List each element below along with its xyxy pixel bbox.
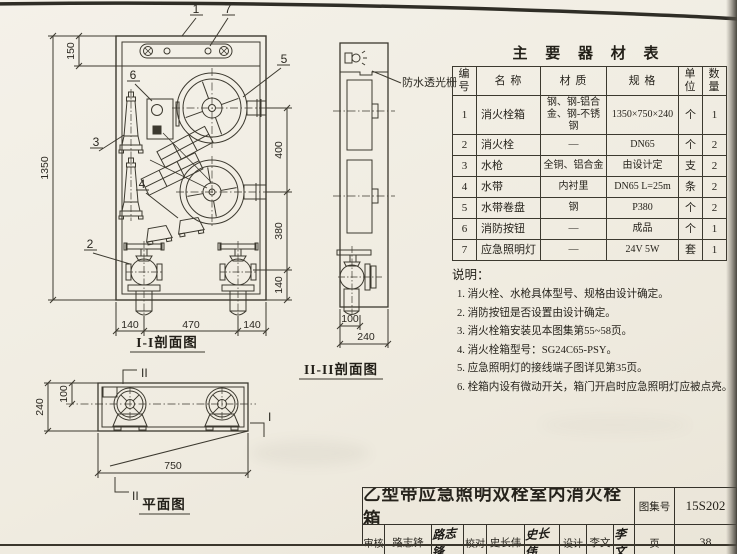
col-header-no: 编号: [453, 67, 477, 96]
cell-spec: 成品: [607, 219, 679, 240]
reel-side-bottom: [333, 160, 395, 233]
cell-no: 7: [453, 240, 477, 261]
dim-100-plan: 100: [58, 385, 70, 403]
cell-spec: DN65 L=25m: [607, 177, 679, 198]
title-block: 乙型带应急照明双栓室内消火栓箱 图集号 15S202 审核 路志锋 路志锋 校对…: [362, 487, 737, 545]
cell-unit: 支: [679, 156, 703, 177]
col-header-unit: 单位: [679, 67, 703, 96]
callout-4: 4: [139, 177, 146, 191]
cell-unit: 个: [679, 96, 703, 135]
dim-150: 150: [65, 42, 77, 60]
cell-qty: 1: [703, 240, 727, 261]
callout-3: 3: [93, 135, 100, 149]
cell-unit: 个: [679, 198, 703, 219]
cell-qty: 2: [703, 156, 727, 177]
emergency-lamp-icon: [345, 51, 367, 65]
dim-240-plan: 240: [34, 398, 46, 416]
cell-qty: 1: [703, 96, 727, 135]
table-row: 5 水带卷盘 钢 P380 个 2: [453, 198, 727, 219]
table-row: 1 消火栓箱 钢、钢-铝合金、钢-不锈钢 1350×750×240 个 1: [453, 96, 727, 135]
cell-name: 水带卷盘: [477, 198, 541, 219]
cell-no: 1: [453, 96, 477, 135]
cell-no: 2: [453, 135, 477, 156]
callout-7: 7: [225, 2, 232, 16]
cell-qty: 2: [703, 198, 727, 219]
waterproof-grille-note: 防水透光栅: [402, 75, 457, 89]
bleedthrough-smudge: [250, 440, 370, 466]
dim-1350: 1350: [39, 156, 51, 180]
designer-name: 李文: [586, 525, 613, 554]
equipment-table-title: 主 要 器 材 表: [452, 42, 726, 63]
dim-380: 380: [273, 222, 285, 240]
cell-unit: 个: [679, 219, 703, 240]
callout-2: 2: [87, 237, 94, 251]
callout-5: 5: [281, 52, 288, 66]
cell-material: 全铜、铝合金: [541, 156, 607, 177]
cell-name: 消防按钮: [477, 219, 541, 240]
drawing-title: 乙型带应急照明双栓室内消火栓箱: [363, 488, 634, 524]
cell-unit: 个: [679, 135, 703, 156]
cell-no: 5: [453, 198, 477, 219]
water-gun-top: [119, 89, 143, 155]
note-item: 1. 消火栓、水枪具体型号、规格由设计确定。: [452, 286, 737, 305]
cell-spec: 由设计定: [607, 156, 679, 177]
cell-spec: P380: [607, 198, 679, 219]
hydrant-valve-right: [218, 241, 258, 316]
cell-unit: 条: [679, 177, 703, 198]
folded-hoses: [141, 126, 213, 245]
hydrant-valve-left: [124, 241, 164, 316]
table-row: 6 消防按钮 — 成品 个 1: [453, 219, 727, 240]
table-row: 4 水带 内衬里 DN65 L=25m 条 2: [453, 177, 727, 198]
col-header-material: 材 质: [541, 67, 607, 96]
cell-material: 钢: [541, 198, 607, 219]
col-header-spec: 规 格: [607, 67, 679, 96]
note-item: 3. 消火栓箱安装见本图集第55~58页。: [452, 323, 737, 342]
plan-view-dimensions: [44, 380, 251, 478]
notes-title: 说明：: [452, 264, 737, 283]
equipment-table-header-row: 编号 名 称 材 质 规 格 单位 数量: [453, 67, 727, 96]
dim-140-br: 140: [243, 319, 261, 331]
plan-reel-right: [204, 386, 241, 430]
notes-section: 说明： 1. 消火栓、水枪具体型号、规格由设计确定。 2. 消防按钮是否设置由设…: [452, 264, 737, 397]
front-view-callout-leaders: [84, 15, 290, 264]
cell-name: 消火栓箱: [477, 96, 541, 135]
cell-material: —: [541, 135, 607, 156]
hose-reel-bottom: [176, 156, 270, 228]
side-view: 100 240 防水透光栅 II-II剖面图: [299, 43, 457, 379]
note-item: 6. 栓箱内设有微动开关，箱门开启时应急照明灯应被点亮。: [452, 379, 737, 398]
dim-750: 750: [164, 460, 182, 472]
section-mark-top: II: [141, 366, 148, 380]
page-label: 页: [634, 525, 674, 554]
cell-qty: 2: [703, 177, 727, 198]
table-row: 7 应急照明灯 — 24V 5W 套 1: [453, 240, 727, 261]
cell-name: 应急照明灯: [477, 240, 541, 261]
side-view-title: II-II剖面图: [304, 361, 378, 377]
dim-400: 400: [273, 141, 285, 159]
table-row: 2 消火栓 — DN65 个 2: [453, 135, 727, 156]
cell-no: 4: [453, 177, 477, 198]
table-row: 3 水枪 全铜、铝合金 由设计定 支 2: [453, 156, 727, 177]
designer-signature: 李文: [613, 525, 634, 554]
dim-140-right: 140: [273, 276, 285, 294]
cell-material: 内衬里: [541, 177, 607, 198]
plan-view: 100 240 750 II II I 平面图: [34, 366, 271, 514]
checker-signature: 史长伟: [524, 525, 559, 554]
cell-name: 消火栓: [477, 135, 541, 156]
note-item: 2. 消防按钮是否设置由设计确定。: [452, 305, 737, 324]
cell-qty: 2: [703, 135, 727, 156]
check-label: 校对: [463, 525, 486, 554]
atlas-number-label: 图集号: [634, 488, 674, 524]
signature-ink: 李文: [614, 525, 634, 554]
dim-140-bl: 140: [121, 319, 139, 331]
valve-side: [337, 246, 382, 315]
scan-right-shadow: [726, 0, 737, 554]
cell-material: 钢、钢-铝合金、钢-不锈钢: [541, 96, 607, 135]
reviewer-name: 路志锋: [384, 525, 431, 554]
cell-no: 3: [453, 156, 477, 177]
note-item: 4. 消火栓箱型号：SG24C65-PSY。: [452, 342, 737, 361]
cell-material: —: [541, 240, 607, 261]
dim-100-side: 100: [341, 313, 359, 325]
review-label: 审核: [363, 525, 384, 554]
checker-name: 史长伟: [486, 525, 524, 554]
reel-side-top: [333, 80, 395, 150]
cell-name: 水带: [477, 177, 541, 198]
dim-470: 470: [182, 319, 200, 331]
plan-view-title: 平面图: [142, 497, 186, 512]
reviewer-signature: 路志锋: [431, 525, 463, 554]
emergency-light-window: [140, 44, 232, 58]
scanned-drawing-sheet: 150 1350 400 380 140 140 470 140: [0, 0, 737, 554]
cell-no: 6: [453, 219, 477, 240]
cell-unit: 套: [679, 240, 703, 261]
callout-1: 1: [193, 2, 200, 16]
front-view: 150 1350 400 380 140 140 470 140: [39, 2, 292, 352]
equipment-table: 编号 名 称 材 质 规 格 单位 数量 1 消火栓箱 钢、钢-铝合金、钢-不锈…: [452, 66, 727, 261]
col-header-qty: 数量: [703, 67, 727, 96]
cell-name: 水枪: [477, 156, 541, 177]
cell-material: —: [541, 219, 607, 240]
technical-drawing: 150 1350 400 380 140 140 470 140: [0, 0, 460, 554]
front-view-title: I-I剖面图: [136, 334, 198, 350]
signature-ink: 史长伟: [525, 525, 559, 554]
cell-spec: 1350×750×240: [607, 96, 679, 135]
design-label: 设计: [559, 525, 586, 554]
note-item: 5. 应急照明灯的接线端子图详见第35页。: [452, 360, 737, 379]
cell-spec: DN65: [607, 135, 679, 156]
callout-6: 6: [130, 68, 137, 82]
plan-cabinet-outline: [66, 383, 256, 431]
dim-240-side: 240: [357, 331, 375, 343]
signature-ink: 路志锋: [432, 525, 463, 554]
section-mark-right: I: [268, 410, 271, 424]
bleedthrough-smudge: [540, 415, 690, 435]
section-mark-bottom: II: [132, 489, 139, 503]
cell-qty: 1: [703, 219, 727, 240]
col-header-name: 名 称: [477, 67, 541, 96]
cell-spec: 24V 5W: [607, 240, 679, 261]
